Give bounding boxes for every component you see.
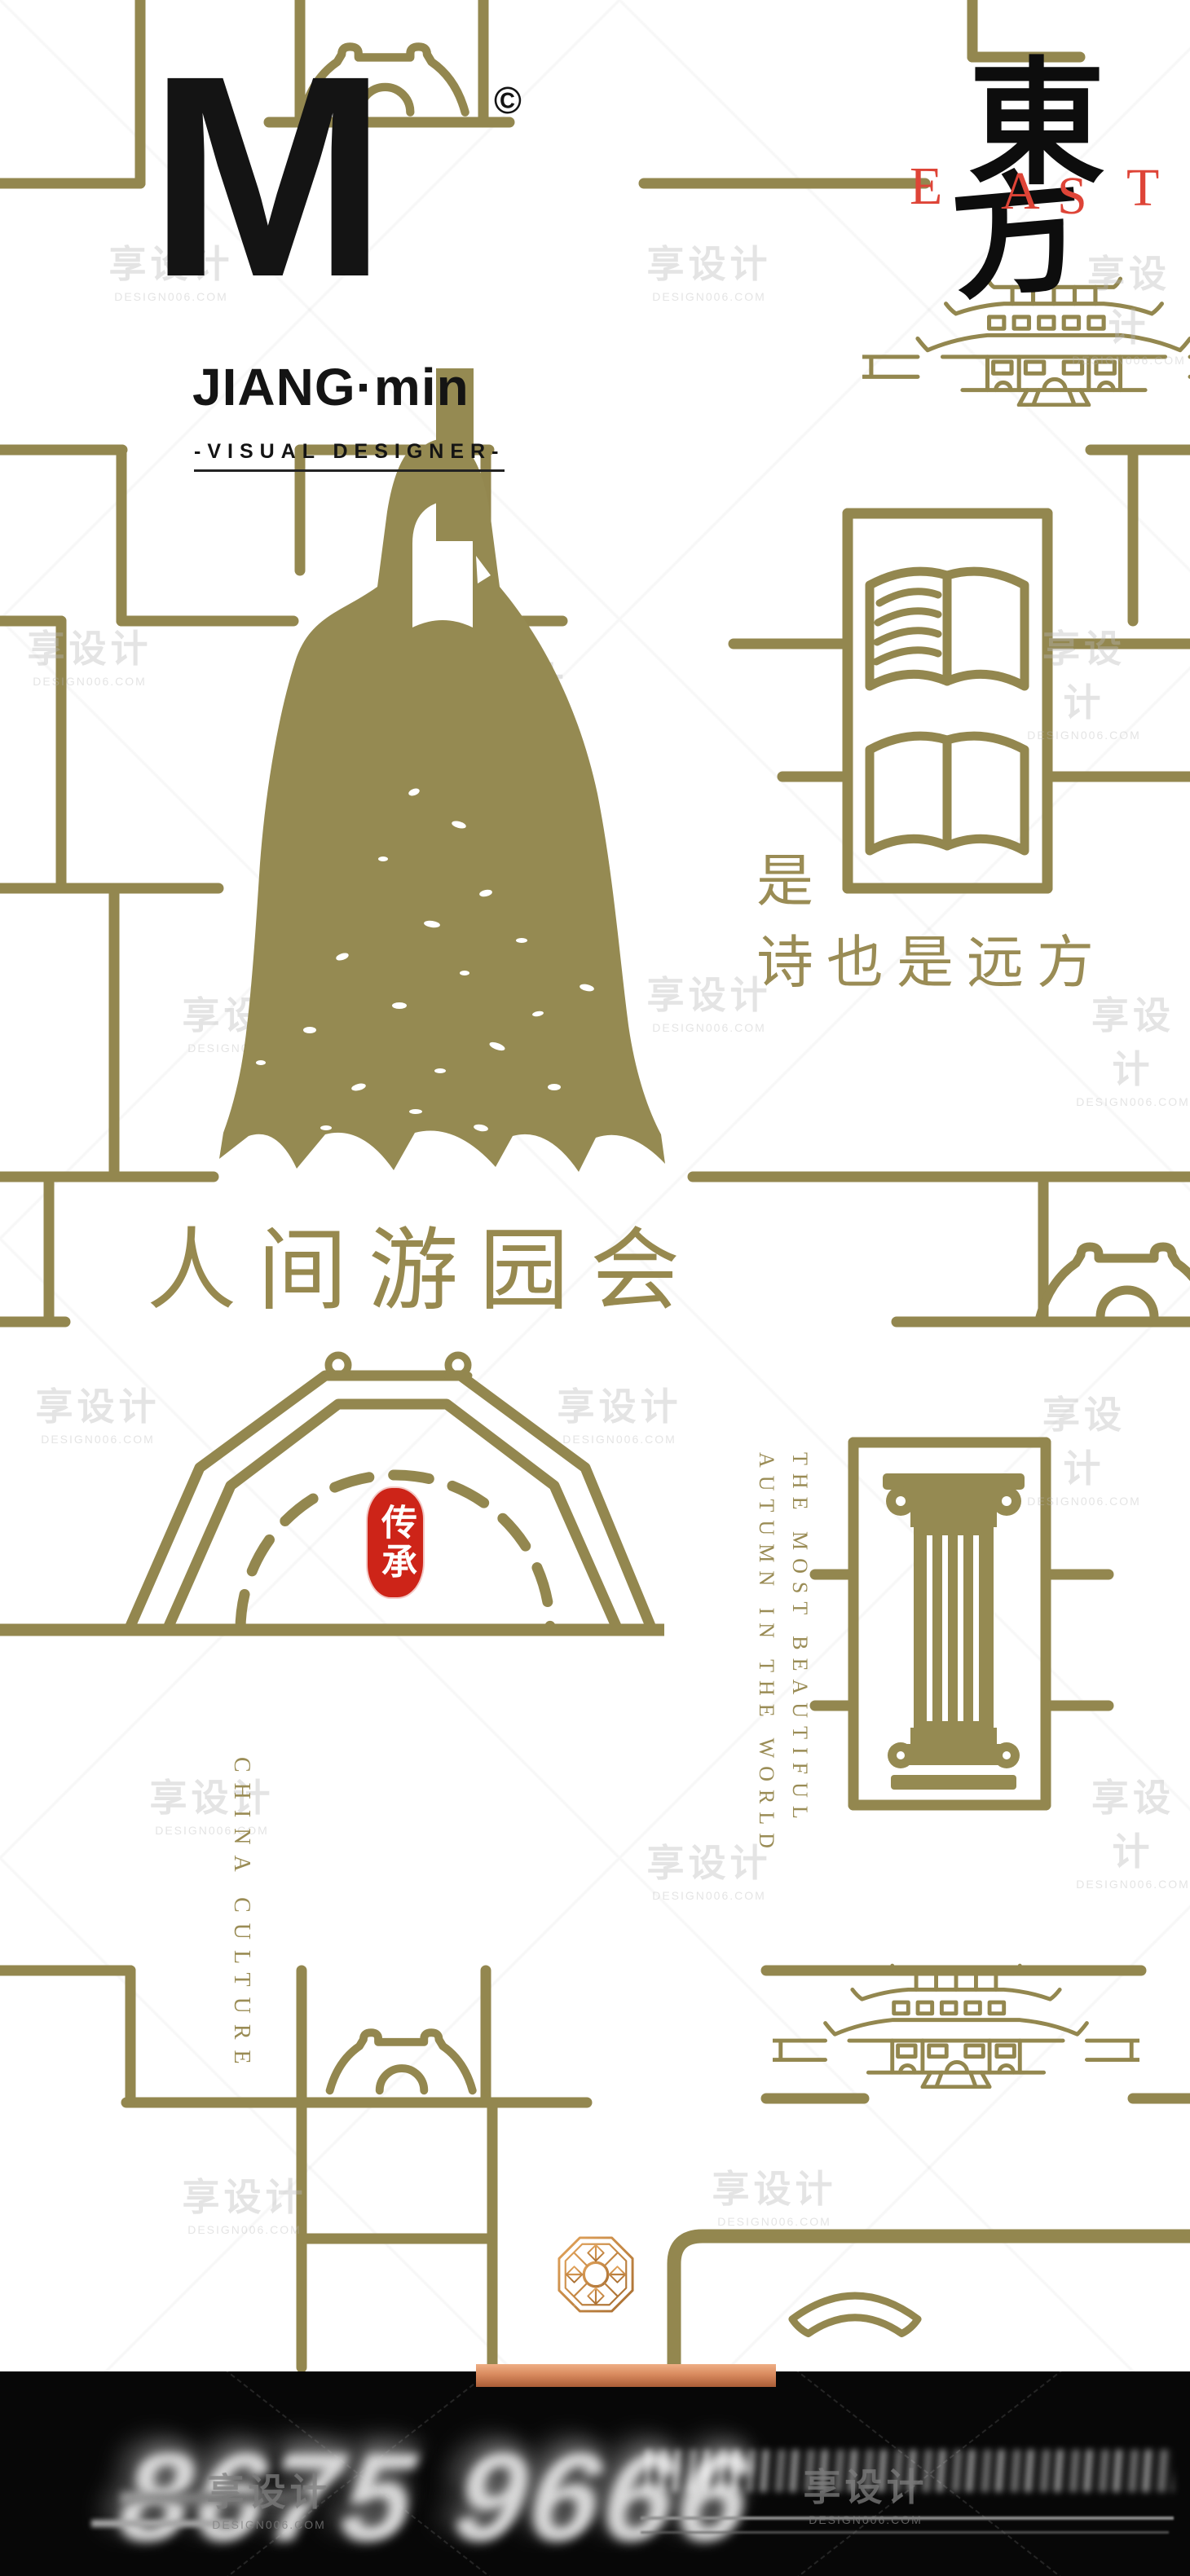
roman-column-icon <box>862 1452 1046 1803</box>
bell-illustration <box>210 368 675 1183</box>
east-letter-a: A <box>1001 165 1040 218</box>
footer-thin-line-2 <box>641 2531 1169 2534</box>
copper-bar <box>476 2364 776 2387</box>
fan-icon <box>782 2266 928 2340</box>
footer-thin-line-1 <box>641 2517 1174 2520</box>
octagon-lattice-icon <box>556 2235 636 2314</box>
blurred-text-streak <box>646 2450 1174 2492</box>
open-books-icon <box>848 512 1047 888</box>
blurred-smear-left <box>121 2492 312 2504</box>
arch-icon-right <box>1034 1231 1190 1322</box>
side-text-line2: AUTUMN IN THE WORLD <box>750 1452 783 1856</box>
east-letter-s: S <box>1057 170 1087 223</box>
east-letter-e: E <box>910 160 942 214</box>
headline-line1: 是 <box>756 854 813 911</box>
heritage-seal-text: 传承 <box>377 1504 413 1582</box>
page-title: 人间游园会 <box>147 1222 701 1321</box>
side-text-autumn: THE MOST BEAUTIFUL AUTUMN IN THE WORLD <box>750 1452 817 1856</box>
logo-name: JIANG·min <box>192 357 469 417</box>
gateway-arch-illustration <box>0 1349 664 1691</box>
copyright-mark: © <box>494 78 522 122</box>
east-letter-t: T <box>1126 161 1159 215</box>
heritage-seal: 传承 <box>368 1488 423 1597</box>
poster-page: M © JIANG·min -VISUAL DESIGNER- 東 方 E A … <box>0 0 1190 2576</box>
side-text-line1: THE MOST BEAUTIFUL <box>783 1452 817 1856</box>
arch-icon-bottom-left <box>324 2015 479 2099</box>
logo-letter: M <box>148 33 387 319</box>
headline-line2: 诗也是远方 <box>756 936 1107 993</box>
blurred-dash-left <box>91 2520 234 2527</box>
logo-subtitle: -VISUAL DESIGNER- <box>194 440 505 472</box>
palace-icon-bottom-right <box>773 1961 1139 2089</box>
side-text-china-culture: CHINA CULTURE <box>228 1757 254 2075</box>
